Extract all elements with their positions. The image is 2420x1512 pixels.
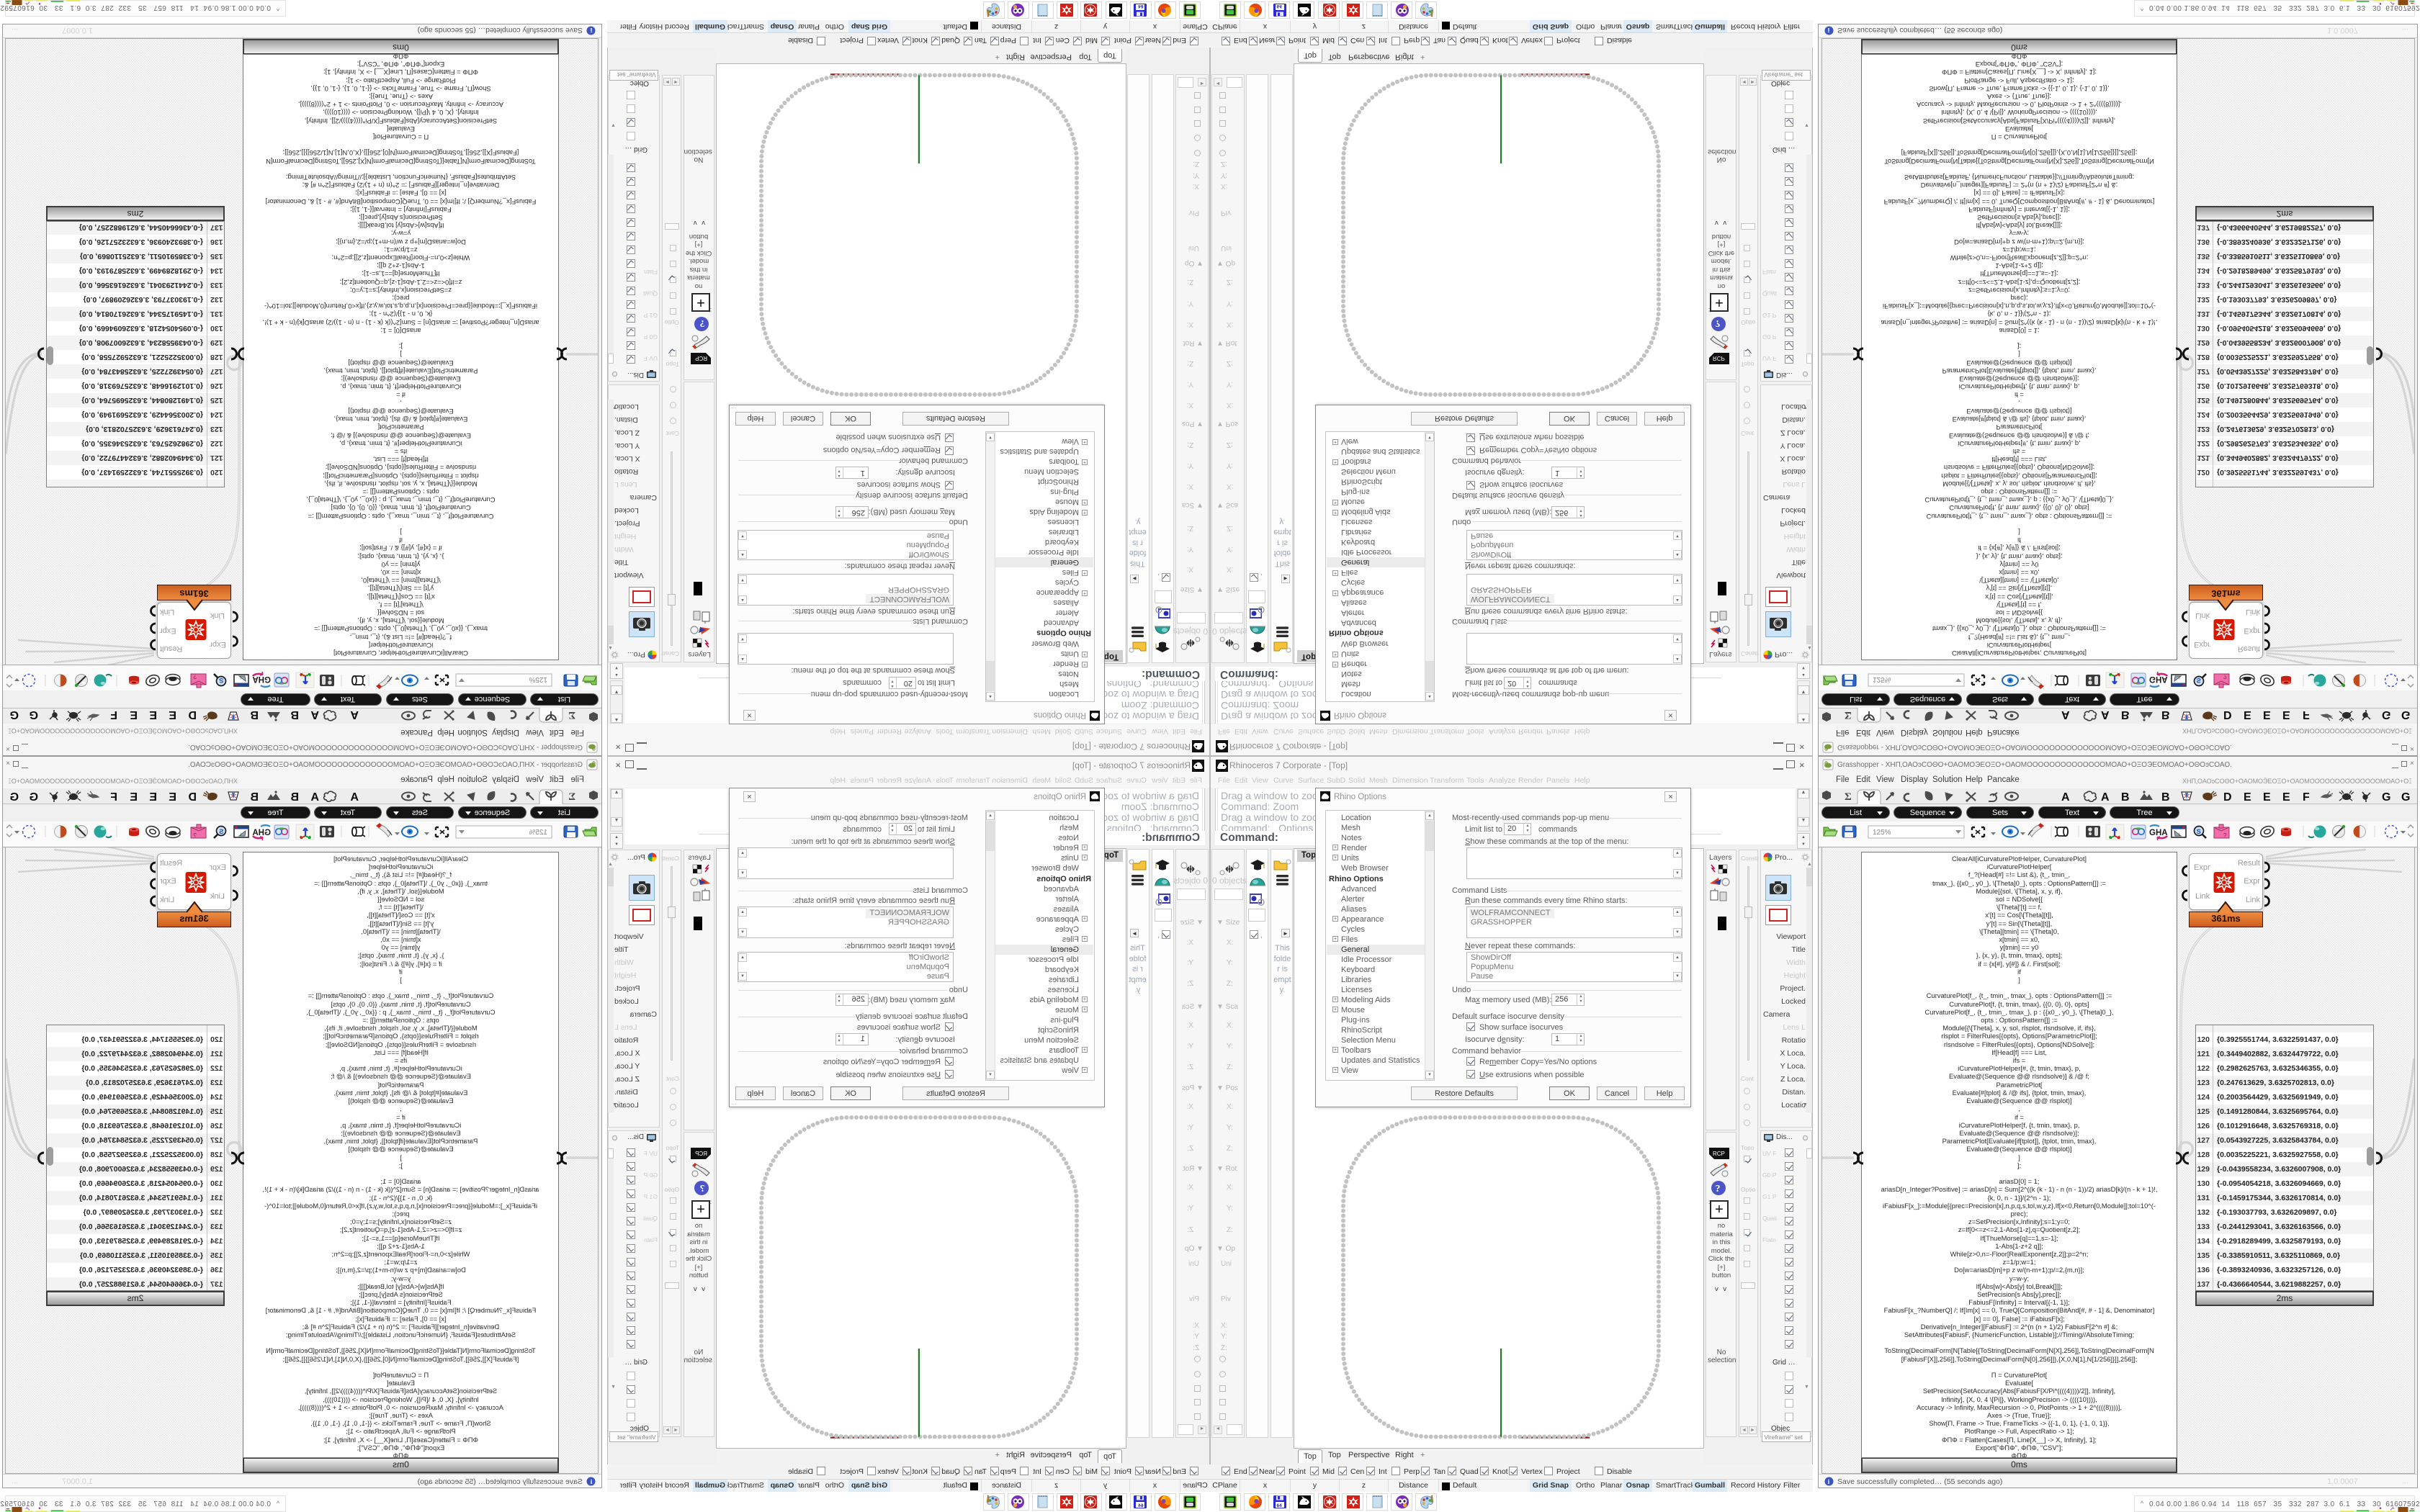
svg-text:E: E: [2282, 708, 2290, 721]
svg-text:E: E: [2263, 791, 2271, 804]
svg-text:GHA: GHA: [252, 829, 271, 837]
svg-text:E: E: [149, 791, 157, 804]
svg-text:D: D: [2223, 791, 2232, 804]
svg-text:A: A: [2101, 708, 2110, 721]
svg-text:125%: 125%: [1873, 675, 1891, 683]
svg-text:?: ?: [1716, 1184, 1721, 1194]
svg-text:E: E: [130, 708, 138, 721]
svg-text:i: i: [590, 1478, 592, 1485]
svg-text:G: G: [30, 791, 38, 804]
svg-text:G: G: [2401, 791, 2410, 804]
svg-text:E: E: [149, 708, 157, 721]
svg-text:RCP: RCP: [695, 1151, 707, 1157]
svg-text:E: E: [2263, 708, 2271, 721]
svg-text:GHA: GHA: [252, 675, 271, 683]
svg-text:64: 64: [1277, 1503, 1283, 1508]
svg-text:F: F: [110, 791, 117, 804]
svg-text:D: D: [188, 708, 197, 721]
svg-text:Σ: Σ: [1845, 791, 1852, 803]
svg-text:L: L: [238, 675, 241, 679]
svg-text:A: A: [2061, 791, 2070, 804]
svg-text:GHA: GHA: [2149, 829, 2168, 837]
svg-text:S: S: [2197, 828, 2201, 836]
svg-text:E: E: [2244, 791, 2251, 804]
svg-text:A: A: [310, 791, 319, 804]
svg-text:B: B: [290, 708, 299, 721]
svg-text:E: E: [169, 708, 176, 721]
svg-text:B: B: [2161, 791, 2170, 804]
svg-text:?: ?: [700, 1184, 705, 1194]
svg-text:F: F: [110, 708, 117, 721]
svg-text:G: G: [30, 708, 38, 721]
svg-text:B: B: [250, 791, 259, 804]
svg-text:Σ: Σ: [568, 791, 575, 803]
svg-text:A: A: [2101, 791, 2110, 804]
svg-text:125%: 125%: [1873, 829, 1891, 837]
svg-text:?: ?: [193, 832, 197, 839]
svg-text:RCP: RCP: [1713, 1151, 1725, 1157]
svg-text:F: F: [2303, 791, 2310, 804]
svg-text:S: S: [219, 676, 223, 684]
svg-text:S: S: [219, 828, 223, 836]
svg-text:G: G: [10, 791, 19, 804]
svg-text:Σ: Σ: [1845, 709, 1852, 721]
svg-text:B: B: [250, 708, 259, 721]
svg-text:A: A: [350, 708, 359, 721]
svg-text:B: B: [290, 791, 299, 804]
svg-text:B: B: [2161, 708, 2170, 721]
svg-text:S: S: [2197, 676, 2201, 684]
svg-text:GHA: GHA: [2149, 675, 2168, 683]
svg-text:?: ?: [700, 318, 705, 328]
svg-text:64: 64: [1138, 4, 1144, 9]
svg-text:B: B: [2121, 708, 2130, 721]
svg-text:64: 64: [1138, 1503, 1144, 1508]
svg-text:L: L: [238, 833, 241, 837]
svg-text:A: A: [350, 791, 359, 804]
svg-text:D: D: [2223, 708, 2232, 721]
svg-text:i: i: [590, 27, 592, 34]
svg-text:E: E: [2244, 708, 2251, 721]
svg-text:G: G: [2382, 708, 2390, 721]
svg-text:D: D: [188, 791, 197, 804]
svg-text:64: 64: [1277, 4, 1283, 9]
svg-text:A: A: [2061, 708, 2070, 721]
svg-text:RCP: RCP: [1713, 355, 1725, 361]
svg-text:?: ?: [2223, 673, 2227, 680]
svg-text:E: E: [2282, 791, 2290, 804]
svg-text:G: G: [2382, 791, 2390, 804]
svg-text:RCP: RCP: [695, 355, 707, 361]
svg-text:?: ?: [193, 673, 197, 680]
svg-text:G: G: [2401, 708, 2410, 721]
svg-text:B: B: [2121, 791, 2130, 804]
svg-text:Σ: Σ: [568, 709, 575, 721]
svg-text:F: F: [2303, 708, 2310, 721]
svg-text:125%: 125%: [529, 829, 547, 837]
svg-text:G: G: [10, 708, 19, 721]
svg-text:A: A: [310, 708, 319, 721]
svg-text:E: E: [130, 791, 138, 804]
svg-text:?: ?: [2223, 832, 2227, 839]
svg-text:125%: 125%: [529, 675, 547, 683]
svg-text:?: ?: [1716, 318, 1721, 328]
svg-text:E: E: [169, 791, 176, 804]
